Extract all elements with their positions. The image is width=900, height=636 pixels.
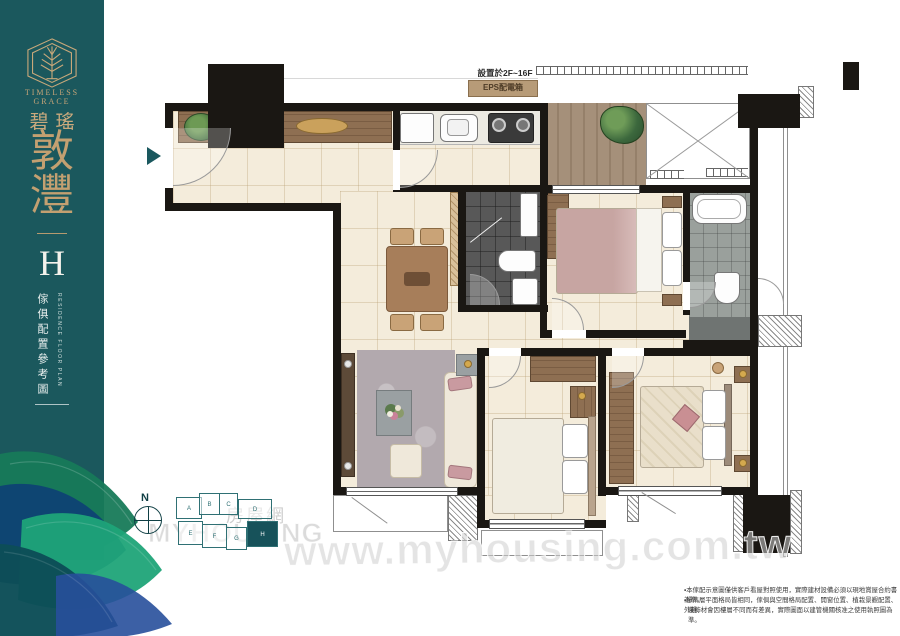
keyplan-unit-e: E	[178, 521, 203, 545]
wall-master-left	[540, 191, 547, 338]
brand-name-en-line2: GRACE	[0, 97, 104, 106]
top-right-small-column	[843, 62, 859, 90]
keyplan-unit-c: C	[219, 493, 238, 515]
side-table-dish	[464, 360, 472, 368]
master-pillow-bottom	[662, 250, 682, 286]
wall-bath1-bottom	[458, 305, 548, 312]
master-bed-sheet	[636, 208, 662, 292]
master-pillow-top	[662, 212, 682, 248]
wall-bath1-left	[458, 191, 466, 311]
keyplan-unit-d: D	[238, 499, 272, 519]
brand-name-en-line1: TIMELESS	[0, 88, 104, 97]
bath1-basin-unit	[520, 193, 538, 237]
stove-burner-left	[492, 118, 506, 132]
bathtub-inner	[697, 199, 741, 219]
bed3-duvet-plaid	[640, 386, 704, 468]
master-nightstand-bottom	[662, 294, 682, 306]
tv-speaker-top	[344, 360, 352, 368]
bedroom2-door-gap	[489, 348, 521, 356]
dimension-tick-strip	[536, 66, 748, 75]
keyplan-unit-f: F	[202, 524, 227, 548]
sidebar-divider-top	[37, 233, 67, 234]
dining-chair-1	[390, 228, 414, 245]
neighbor-hatch-mid-right	[758, 315, 802, 347]
eps-label-box: EPS配電箱	[468, 80, 538, 97]
sofa-pillow-bottom	[447, 465, 472, 481]
stairwell-cross-icon	[646, 103, 750, 179]
keyplan-unit-b: B	[199, 493, 220, 515]
wall-entry-bottom	[165, 203, 341, 211]
column-top-right	[738, 94, 800, 128]
bed2-duvet	[492, 418, 564, 514]
master-nightstand-top	[662, 196, 682, 208]
bed2-pillow-top	[562, 424, 588, 458]
entry-direction-arrow-icon	[147, 147, 161, 165]
decor-tray	[296, 118, 348, 134]
bed2-wardrobe	[530, 356, 596, 382]
mbath-door-gap	[683, 282, 690, 310]
wall-kitchen-right	[540, 103, 548, 195]
bath1-toilet	[498, 250, 536, 272]
floor-range-note: 設置於2F~16F	[455, 67, 555, 79]
living-balcony-sliding-door	[346, 487, 458, 496]
neighbor-door-arc	[758, 278, 784, 304]
bed2-pillow-bottom	[562, 460, 588, 494]
dining-chair-4	[420, 314, 444, 331]
plan-caption-zh: 傢俱配置參考圖	[34, 293, 50, 403]
wall-right-mid	[750, 196, 758, 352]
wall-bed2-bed3-divider	[598, 348, 606, 496]
neighbor-hatch-top-right	[798, 86, 814, 118]
bed2-headboard	[588, 416, 596, 516]
wall-living-left	[333, 203, 341, 495]
refrigerator	[400, 113, 434, 143]
bedroom3-window	[618, 486, 722, 496]
hexagon-tree-logo-icon	[24, 38, 80, 88]
wall-mbath-bottom	[683, 340, 758, 348]
stove-burner-right	[516, 118, 530, 132]
entry-door-gap	[165, 128, 173, 188]
watermark-site-url: www.myhousing.com.tw	[284, 520, 793, 575]
keyplan-unit-h-highlighted: H	[247, 521, 278, 547]
wall-kitchen-bottom	[393, 185, 543, 192]
sidebar-divider-bottom	[35, 404, 69, 405]
dining-chair-3	[390, 314, 414, 331]
project-name-char-1: 敦	[0, 130, 104, 174]
bed2-desk-lamp	[578, 392, 586, 400]
bed3-stool	[712, 362, 724, 374]
bed3-pillow-top	[702, 390, 726, 424]
tv-console	[341, 353, 355, 477]
compass-north-label: N	[141, 492, 149, 504]
wall-bed2-left	[477, 348, 485, 528]
bed3-wardrobe	[609, 372, 634, 484]
balcony-sliding-window	[552, 185, 640, 194]
wall-kitchen-left	[393, 103, 400, 153]
bed3-pillow-bottom	[702, 426, 726, 460]
brochure-page: TIMELESS GRACE 碧瑤 敦 灃 H 傢俱配置參考圖 RESIDENC…	[0, 0, 900, 636]
dining-chair-2	[420, 228, 444, 245]
compass-icon	[134, 506, 162, 534]
coffee-table-flowers	[382, 400, 408, 426]
project-name-char-2: 灃	[0, 174, 104, 218]
bed3-nightstand-bottom-lamp	[739, 459, 747, 467]
unit-type-label: H	[0, 245, 104, 281]
master-door-gap	[552, 330, 586, 338]
bed2-desk	[570, 386, 596, 418]
bed3-nightstand-top-lamp	[739, 370, 747, 378]
keyplan-unit-g: G	[226, 527, 247, 550]
sofa-ottoman	[390, 444, 422, 478]
disclaimer-line-3: 裝飾材會因樓層不同而有差異，實際圖面以建管機關核准之使用執照圖為準。	[688, 606, 900, 626]
master-bed-duvet	[556, 208, 638, 294]
bath1-washer	[512, 278, 538, 305]
mbath-toilet	[714, 272, 740, 304]
kitchen-sink-basin	[447, 119, 469, 136]
plan-caption-en: RESIDENCE FLOOR PLAN	[56, 293, 62, 397]
balcony-plants	[600, 106, 644, 144]
dining-table-decor	[404, 272, 430, 286]
wall-right-lower	[750, 352, 758, 495]
bed3-window-hatch-left	[627, 492, 639, 522]
bedroom3-door-gap	[612, 348, 644, 356]
kitchen-door-gap	[393, 150, 400, 190]
tv-speaker-bottom	[344, 462, 352, 470]
